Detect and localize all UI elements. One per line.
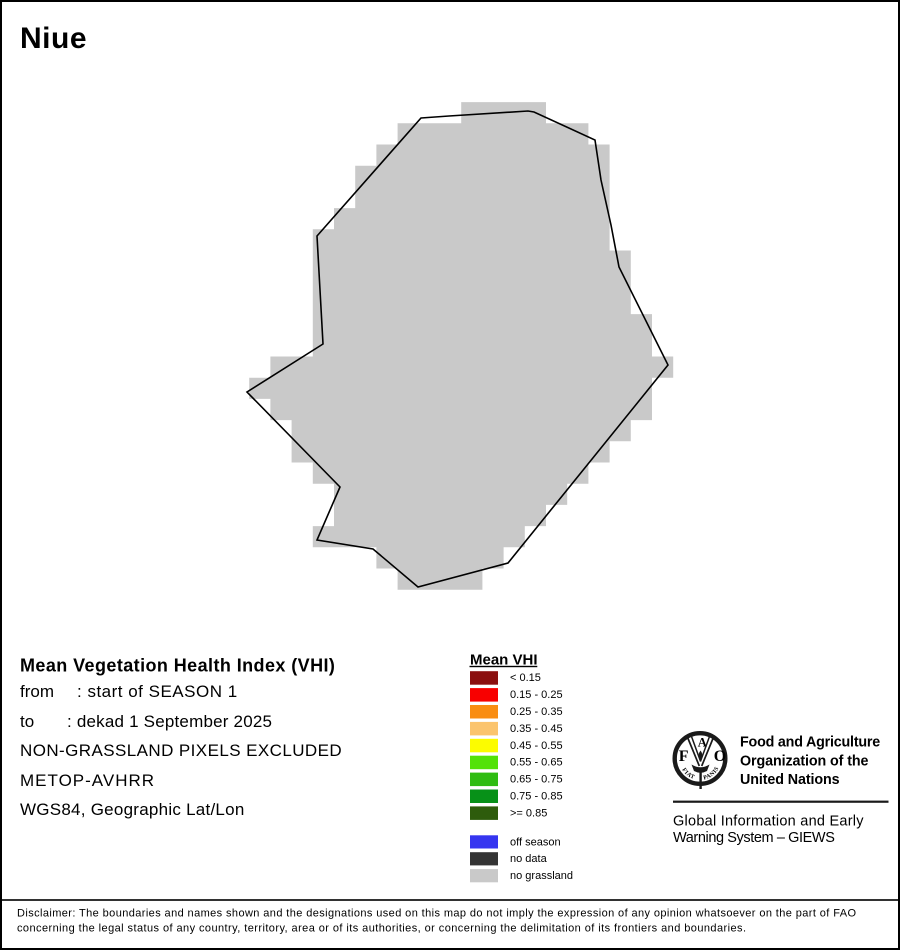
svg-text:0.75 - 0.85: 0.75 - 0.85 [510, 791, 563, 803]
svg-text:0.35 - 0.45: 0.35 - 0.45 [510, 723, 563, 735]
svg-text:O: O [714, 748, 726, 765]
svg-text:to: to [20, 712, 34, 731]
svg-text:>= 0.85: >= 0.85 [510, 807, 547, 819]
svg-text:Food and Agriculture: Food and Agriculture [740, 735, 880, 751]
svg-text:WGS84, Geographic Lat/Lon: WGS84, Geographic Lat/Lon [20, 800, 245, 819]
svg-text:METOP-AVHRR: METOP-AVHRR [20, 771, 155, 790]
svg-text:Niue: Niue [20, 22, 87, 55]
svg-text:Organization of the: Organization of the [740, 753, 869, 769]
svg-text:Warning System – GIEWS: Warning System – GIEWS [673, 830, 834, 846]
svg-text:from: from [20, 682, 54, 701]
svg-text:Disclaimer: The boundaries and: Disclaimer: The boundaries and names sho… [17, 908, 856, 920]
svg-text:0.55 - 0.65: 0.55 - 0.65 [510, 757, 563, 769]
svg-text:0.25 - 0.35: 0.25 - 0.35 [510, 706, 563, 718]
svg-text:no grassland: no grassland [510, 870, 573, 882]
svg-text:< 0.15: < 0.15 [510, 672, 541, 684]
svg-text:concerning the legal status of: concerning the legal status of any count… [17, 923, 746, 935]
svg-text:Mean Vegetation Health Index (: Mean Vegetation Health Index (VHI) [20, 656, 335, 676]
svg-text:0.45 - 0.55: 0.45 - 0.55 [510, 740, 563, 752]
svg-text:0.65 - 0.75: 0.65 - 0.75 [510, 774, 563, 786]
svg-text:off season: off season [510, 836, 561, 848]
svg-text:: start of SEASON 1: : start of SEASON 1 [77, 682, 238, 701]
svg-text:Global Information and Early: Global Information and Early [673, 813, 864, 829]
svg-text:F: F [679, 748, 689, 765]
svg-text:0.15 - 0.25: 0.15 - 0.25 [510, 689, 563, 701]
svg-text:United Nations: United Nations [740, 772, 840, 788]
svg-text:NON-GRASSLAND PIXELS EXCLUDED: NON-GRASSLAND PIXELS EXCLUDED [20, 741, 342, 760]
svg-text:: dekad 1 September 2025: : dekad 1 September 2025 [67, 712, 272, 731]
svg-text:no data: no data [510, 853, 548, 865]
